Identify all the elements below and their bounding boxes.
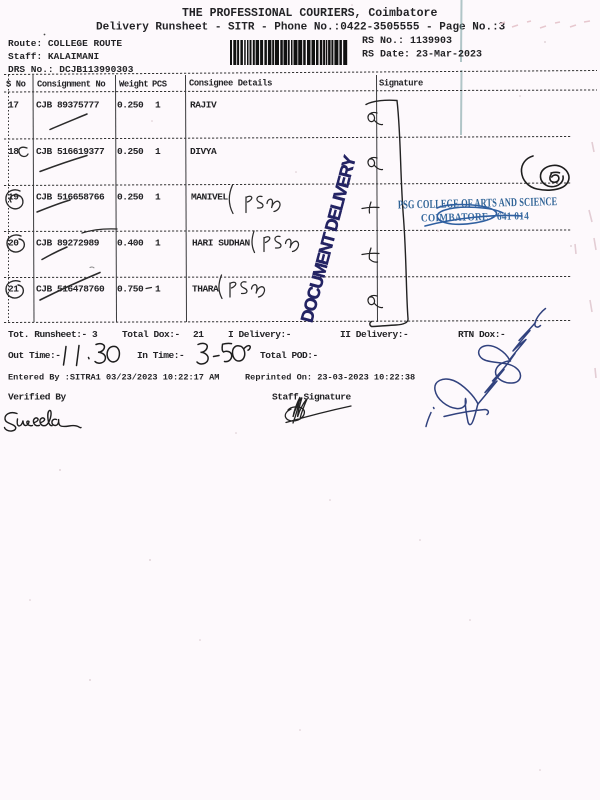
svg-text:1: 1 [155,192,161,203]
svg-text:CJB 89272989: CJB 89272989 [36,238,100,249]
svg-text:Staff Signature: Staff Signature [272,392,352,403]
svg-text:Verified By: Verified By [8,392,67,403]
svg-text:20: 20 [8,238,19,249]
svg-text:Route: COLLEGE ROUTE: Route: COLLEGE ROUTE [8,38,122,49]
svg-text:17: 17 [8,100,19,111]
svg-text:HARI SUDHAN: HARI SUDHAN [192,238,251,249]
svg-text:0.250: 0.250 [117,100,144,111]
svg-text:RS No.: 1139903: RS No.: 1139903 [362,36,452,47]
svg-text:Consignment No: Consignment No [37,80,105,90]
svg-text:Staff: KALAIMANI: Staff: KALAIMANI [8,51,99,62]
svg-text:RAJIV: RAJIV [190,100,217,111]
svg-text:Reprinted On: 23-03-2023 10:22: Reprinted On: 23-03-2023 10:22:38 [245,373,415,383]
svg-text:In Time:-: In Time:- [137,350,184,361]
svg-text:18: 18 [8,146,19,157]
svg-text:0.750: 0.750 [117,284,144,295]
svg-text:CJB 516619377: CJB 516619377 [36,146,105,157]
svg-text:THE PROFESSIONAL COURIERS, Coi: THE PROFESSIONAL COURIERS, Coimbatore [182,7,437,20]
svg-text:CJB 89375777: CJB 89375777 [36,100,100,111]
svg-text:Consignee Details: Consignee Details [189,79,272,89]
svg-text:CJB 516658766: CJB 516658766 [36,192,105,203]
svg-text:PCS: PCS [152,80,167,90]
svg-text:DIVYA: DIVYA [190,146,217,157]
svg-text:Tot. Runsheet:- 3: Tot. Runsheet:- 3 [8,329,98,340]
svg-text:Total Dox:-: Total Dox:- [122,329,180,340]
svg-text:RS Date: 23-Mar-2023: RS Date: 23-Mar-2023 [362,50,482,61]
svg-text:0.250: 0.250 [117,192,144,203]
svg-text:THARA: THARA [192,284,219,295]
svg-text:21: 21 [193,329,204,340]
svg-text:Total POD:-: Total POD:- [260,350,318,361]
svg-text:1: 1 [155,146,161,157]
svg-text:RTN Dox:-: RTN Dox:- [458,329,505,340]
svg-text:0.250: 0.250 [117,146,144,157]
svg-text:Entered By :SITRA1 03/23/2023: Entered By :SITRA1 03/23/2023 10:22:17 A… [8,373,219,383]
svg-text:Signature: Signature [379,79,423,89]
svg-text:1: 1 [155,284,161,295]
svg-text:1: 1 [155,100,161,111]
svg-text:Delivery Runsheet - SITR - Pho: Delivery Runsheet - SITR - Phone No.:042… [96,22,506,34]
svg-text:MANIVEL: MANIVEL [191,192,229,203]
svg-text:Weight: Weight [119,80,148,90]
svg-text:DRS No.: DCJB113990303: DRS No.: DCJB113990303 [8,64,134,75]
svg-text:S No: S No [6,80,26,90]
svg-text:0.400: 0.400 [117,238,144,249]
svg-text:II Delivery:-: II Delivery:- [340,329,408,340]
svg-text:Out Time:-: Out Time:- [8,350,61,361]
svg-text:I Delivery:-: I Delivery:- [228,329,291,340]
svg-text:1: 1 [155,238,161,249]
